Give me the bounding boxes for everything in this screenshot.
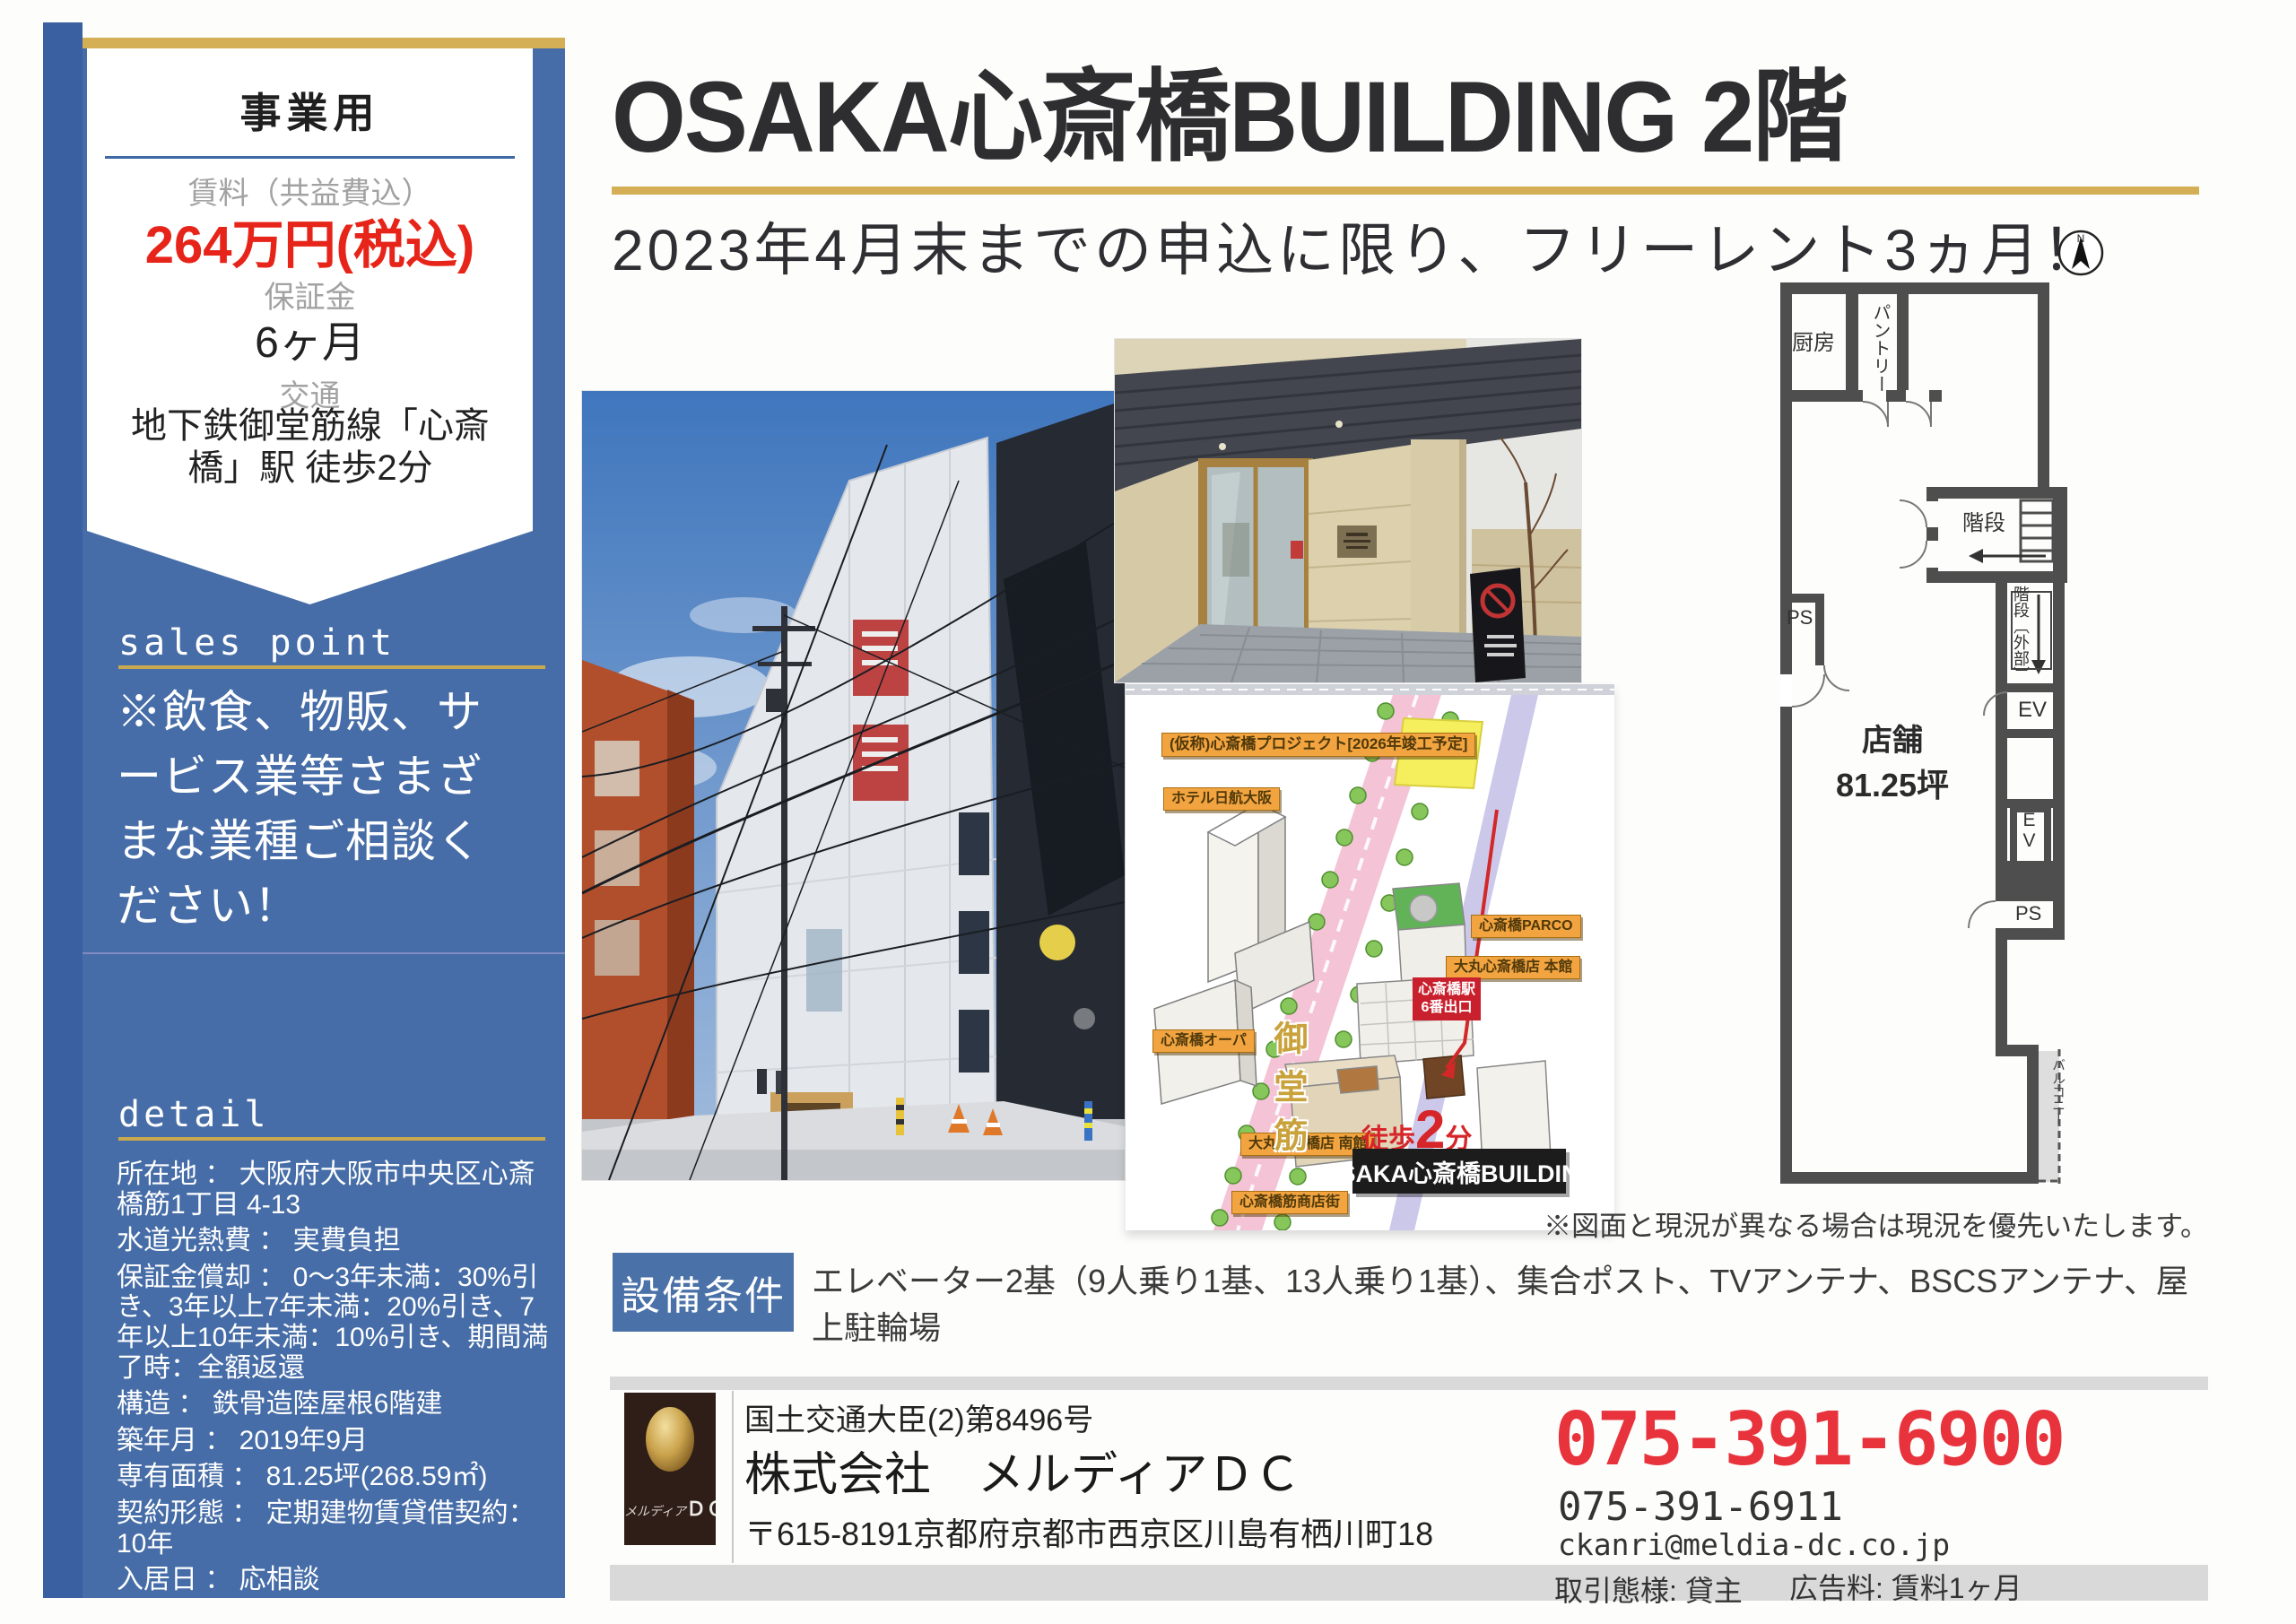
plan-label-stairs: 階段 <box>1962 505 2005 536</box>
ad-fee: 広告料: 賃料1ヶ月 <box>1789 1566 2022 1607</box>
sidebar-gold-bar <box>83 38 565 48</box>
license-number: 国土交通大臣(2)第8496号 <box>744 1395 1093 1439</box>
map-label-project: (仮称)心斎橋プロジェクト[2026年竣工予定] <box>1161 733 1475 757</box>
entrance-photo <box>1114 338 1582 683</box>
logo-text: メルディアＤＣ <box>624 1493 716 1522</box>
station-name: 心斎橋駅 <box>1414 981 1479 999</box>
building-photo <box>581 390 1126 1181</box>
map-label-opa: 心斎橋オーパ <box>1152 1029 1255 1053</box>
plan-shop-block: 店舗 81.25坪 <box>1816 716 1969 806</box>
sales-point-text: ※飲食、物販、サービス業等さまざまな業種ご相談ください！ <box>117 680 522 938</box>
compass-icon: N <box>2056 219 2106 278</box>
sales-point-heading: sales point <box>118 622 396 664</box>
map-label-parco: 心斎橋PARCO <box>1471 915 1581 938</box>
map-building-tag: OSAKA心斎橋BUILDING <box>1352 1149 1566 1194</box>
campaign-subtitle: 2023年4月末までの申込に限り、フリーレント3ヵ月！ <box>612 204 2103 287</box>
plan-label-ev2: EV <box>2018 810 2039 860</box>
category-label: 事業用 <box>87 81 533 140</box>
logo-text-meldia: メルディア <box>624 1504 686 1518</box>
map-street-name: 御堂筋 <box>1263 1020 1312 1166</box>
logo-sphere-icon <box>646 1407 694 1472</box>
map-label-daimaru-main: 大丸心斎橋店 本館 <box>1446 956 1580 979</box>
flyer-page: 事業用 賃料（共益費込） 264万円(税込) 保証金 6ヶ月 交通 地下鉄御堂筋… <box>0 0 2296 1624</box>
plan-label-ps-right: PS <box>2015 902 2041 925</box>
detail-heading: detail <box>118 1094 270 1135</box>
company-logo: メルディアＤＣ <box>624 1393 716 1545</box>
hotel-building <box>1208 803 1314 1014</box>
detail-item: 専有面積 ： 81.25坪(268.59㎡) <box>117 1462 549 1492</box>
detail-item: 保証金償却 ： 0～3年未満：30%引き、3年以上7年未満：20%引き、7年以上… <box>117 1263 549 1383</box>
detail-item: 構造 ： 鉄骨造陸屋根6階建 <box>117 1389 549 1420</box>
rent-value: 264万円(税込) <box>87 203 533 278</box>
plan-label-stairs-ext: 階段〔外部〕 <box>2009 586 2032 707</box>
email-address: ckanri@meldia-dc.co.jp <box>1558 1527 1950 1562</box>
plan-label-balcony: バルコニー <box>2048 1058 2067 1175</box>
plan-note: ※図面と現況が異なる場合は現況を優先いたします。 <box>0 1203 2208 1244</box>
title-gold-rule <box>612 187 2199 195</box>
footer-divider <box>732 1391 734 1563</box>
station-exit: 6番出口 <box>1414 999 1479 1017</box>
map-label-hotel-nikko: ホテル日航大阪 <box>1163 787 1280 811</box>
plan-label-kitchen: 厨房 <box>1792 325 1835 356</box>
plan-label-ps-left: PS <box>1787 606 1813 630</box>
sidebar-accent-strip <box>43 22 83 1598</box>
detail-underline <box>118 1137 545 1141</box>
phone-sub: 075-391-6911 <box>1558 1484 1843 1530</box>
detail-item: 入居日 ： 応相談 <box>117 1565 549 1595</box>
glass-door <box>1203 463 1309 635</box>
target-building <box>1423 1055 1465 1099</box>
plan-label-pantry: パントリー <box>1867 303 1893 415</box>
footer-top-band <box>610 1376 2208 1390</box>
dark-building <box>996 400 1125 1180</box>
company-name: 株式会社 メルディアＤＣ <box>744 1437 1300 1504</box>
logo-text-dc: ＤＣ <box>686 1498 716 1520</box>
plan-label-shop-area: 81.25坪 <box>1816 760 1969 806</box>
company-address: 〒615-8191京都府京都市西京区川島有栖川町18 <box>744 1508 1433 1555</box>
plan-label-ev1: EV <box>2012 698 2053 723</box>
divider-line <box>105 156 515 159</box>
sales-point-underline <box>118 665 545 669</box>
station-exit-badge: 心斎橋駅 6番出口 <box>1413 977 1481 1020</box>
phone-main: 075-391-6900 <box>1554 1397 2064 1482</box>
detail-item: 契約形態 ： 定期建物賃貸借契約：10年 <box>117 1498 549 1559</box>
deposit-value: 6ヶ月 <box>87 307 533 369</box>
page-title: OSAKA心斎橋BUILDING 2階 <box>612 36 1805 181</box>
plan-label-shop: 店舗 <box>1816 716 1969 760</box>
access-map: (仮称)心斎橋プロジェクト[2026年竣工予定] ホテル日航大阪 心斎橋PARC… <box>1126 684 1614 1230</box>
deal-type: 取引態様: 貸主 <box>1554 1568 1743 1610</box>
access-value: 地下鉄御堂筋線「心斎橋」駅 徒歩2分 <box>109 405 512 490</box>
no-bicycle-signboard <box>1470 568 1526 682</box>
faint-divider <box>83 952 565 954</box>
sidebar-panel: 事業用 賃料（共益費込） 264万円(税込) 保証金 6ヶ月 交通 地下鉄御堂筋… <box>83 38 565 1598</box>
equipment-label-box: 設備条件 <box>613 1253 794 1332</box>
stairs-detail <box>2021 500 2053 561</box>
detail-item: 築年月 ： 2019年9月 <box>117 1426 549 1456</box>
price-info-box: 事業用 賃料（共益費込） 264万円(税込) 保証金 6ヶ月 交通 地下鉄御堂筋… <box>87 48 533 604</box>
equipment-text: エレベーター2基（9人乗り1基、13人乗り1基）、集合ポスト、TVアンテナ、BS… <box>812 1255 2211 1349</box>
